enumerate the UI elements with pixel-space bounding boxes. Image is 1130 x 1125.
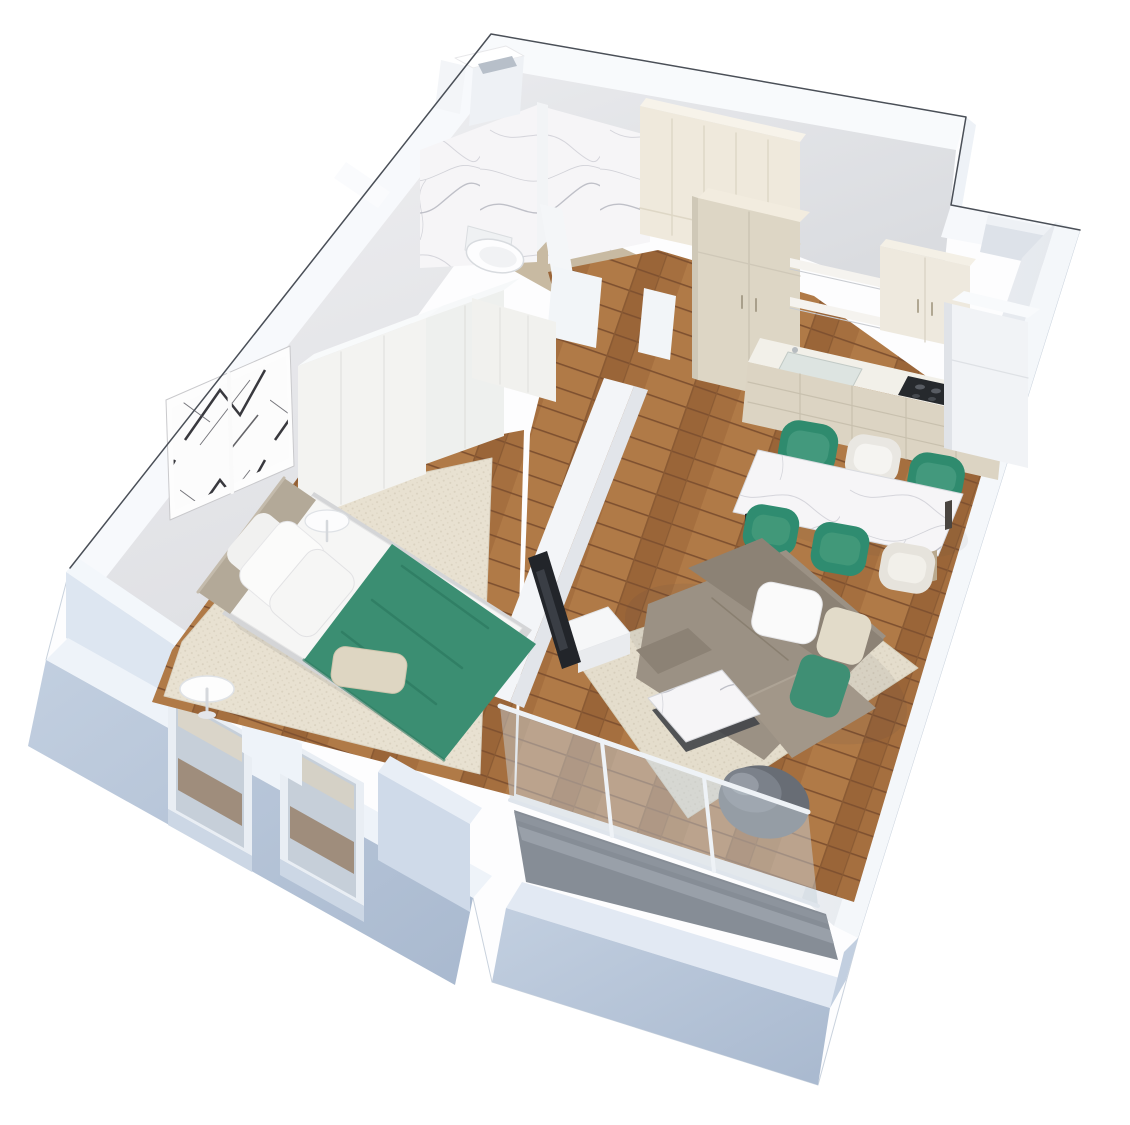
scene-root [28, 34, 1080, 1085]
apartment-floorplan-figure: 3D isometric floor plan render of a one-… [0, 0, 1130, 1125]
dining-table-leg-3 [945, 500, 952, 530]
hob-burner-1 [915, 385, 925, 390]
fridge-column-front [952, 304, 1028, 468]
hob-burner-3 [912, 394, 920, 398]
fridge-column-side [944, 302, 952, 450]
kitchen-faucet [792, 347, 798, 353]
hob-burner-2 [931, 389, 941, 394]
side-table-1-foot [198, 711, 216, 719]
tall-cabinet-side [692, 196, 698, 380]
hob-burner-4 [928, 397, 936, 401]
floorplan-svg [0, 0, 1130, 1125]
hall-bedroom-wall-right [638, 288, 676, 360]
